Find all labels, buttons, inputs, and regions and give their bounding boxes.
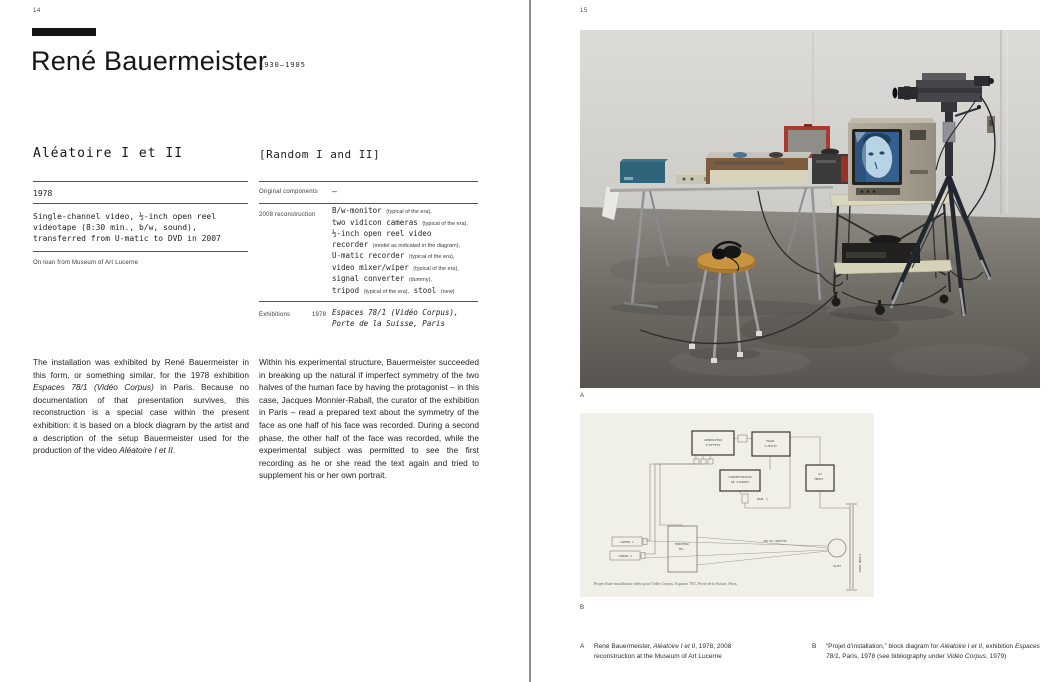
teal-equipment-box xyxy=(620,159,668,183)
black-bar xyxy=(32,28,96,36)
caption-a-text: René Bauermeister, Aléatoire I et II, 19… xyxy=(594,642,756,661)
component-line: recorder (model as indicated in the diag… xyxy=(332,240,482,252)
reconstruction-label: 2008 reconstruction xyxy=(259,212,316,218)
diagram-label: AV xyxy=(818,472,822,476)
diagram-label: SUJET xyxy=(833,564,841,568)
block-diagram-graphic: GENERATEUR D'EFFETS MAGN. U-MATIC CONCEN… xyxy=(580,413,874,597)
diagram-label: DE SIGNAUX xyxy=(731,480,749,484)
component-line: tripod (typical of the era), stool (new) xyxy=(332,286,482,298)
diagram-label: MAGN. ½ xyxy=(757,497,768,501)
diagram-label: PAROI MOBILE xyxy=(858,553,862,572)
body-paragraph-1: The installation was exhibited by René B… xyxy=(33,356,249,457)
figure-b-marker: B xyxy=(580,605,584,611)
open-reel-recorder xyxy=(706,152,812,184)
artist-name: René Bauermeister xyxy=(31,46,267,77)
camera-lens xyxy=(898,87,918,99)
diagram-label: GENERATEUR xyxy=(704,438,722,442)
exhibition-place: Porte de la Suisse, Paris xyxy=(332,319,482,330)
figure-a-marker: A xyxy=(580,393,584,399)
component-line: signal converter (dummy), xyxy=(332,274,482,286)
original-components-label: Original components xyxy=(259,189,318,195)
component-line: ½-inch open reel video xyxy=(332,229,482,240)
caster-wheel xyxy=(832,298,841,307)
diagram-label: CAMERA 2 xyxy=(618,554,632,558)
book-spread: 14 René Bauermeister 1930–1985 Aléatoire… xyxy=(0,0,1059,682)
rule xyxy=(259,181,478,182)
diagram-label: CAMERA 1 xyxy=(620,540,634,544)
page-gutter xyxy=(529,0,531,682)
caster-wheel xyxy=(875,305,885,315)
loan-credit: On loan from Museum of Art Lucerne xyxy=(33,260,138,266)
diagram-label: MONIT. xyxy=(815,477,826,481)
caption-b-marker: B xyxy=(812,642,820,652)
rule xyxy=(33,203,248,204)
viewfinder xyxy=(974,76,990,86)
rule xyxy=(259,203,478,204)
diagram-label: TEL. xyxy=(679,547,686,551)
exhibitions-year: 1978 xyxy=(312,312,326,318)
work-title-french: Aléatoire I et II xyxy=(33,146,183,161)
component-list: B/w-monitor (typical of the era),two vid… xyxy=(332,206,482,297)
installation-photo xyxy=(580,30,1040,388)
diagram-label: MAGN. xyxy=(766,439,775,443)
exhibitions-label: Exhibitions xyxy=(259,312,290,318)
rule xyxy=(33,181,248,182)
rule xyxy=(33,251,248,252)
component-line: two vidicon cameras (typical of the era)… xyxy=(332,218,482,230)
page-number-right: 15 xyxy=(580,8,588,14)
component-line: video mixer/wiper (typical of the era), xyxy=(332,263,482,275)
exhibition-name: Espaces 78/1 (Vidéo Corpus), xyxy=(332,308,482,319)
installation-photo-graphic xyxy=(580,30,1040,388)
work-medium: Single-channel video, ½-inch open reel v… xyxy=(33,211,249,244)
work-title-english: [Random I and II] xyxy=(259,148,380,161)
original-components-value: — xyxy=(332,186,337,197)
rule xyxy=(259,301,478,302)
diagram-label: U-MATIC xyxy=(765,444,778,448)
component-line: U-matic recorder (typical of the era), xyxy=(332,251,482,263)
caption-b-text: “Projet d’installation,” block diagram f… xyxy=(826,642,1044,661)
block-diagram: GENERATEUR D'EFFETS MAGN. U-MATIC CONCEN… xyxy=(580,413,874,597)
caption-a-marker: A xyxy=(580,642,588,652)
tv-vent xyxy=(910,130,926,140)
page-number-left: 14 xyxy=(33,8,41,14)
exhibition-entry: Espaces 78/1 (Vidéo Corpus), Porte de la… xyxy=(332,308,482,329)
diagram-label: CONCENTRATEUR xyxy=(728,475,752,479)
component-line: B/w-monitor (typical of the era), xyxy=(332,206,482,218)
caster-wheel xyxy=(940,295,949,304)
tv-monitor xyxy=(848,118,936,201)
body-paragraph-2: Within his experimental structure, Bauer… xyxy=(259,356,479,482)
diagram-label: MONITEUR xyxy=(675,542,689,546)
diagram-label: D'EFFETS xyxy=(706,443,721,447)
diagram-label: AXE DE LUNETTES xyxy=(763,539,787,543)
tape-reel xyxy=(733,152,747,158)
artist-dates: 1930–1985 xyxy=(259,61,306,69)
tape-reel xyxy=(769,152,783,158)
work-year: 1978 xyxy=(33,188,52,199)
